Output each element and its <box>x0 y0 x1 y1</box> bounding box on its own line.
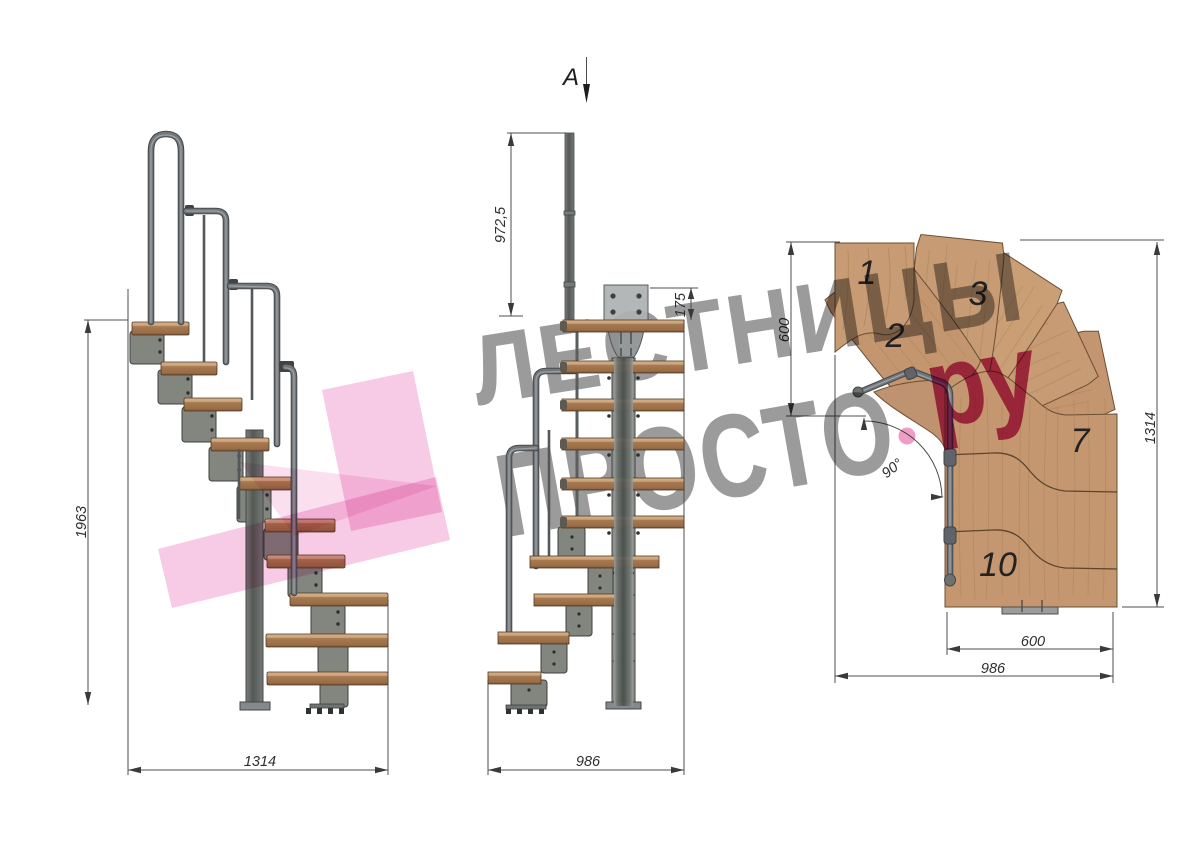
svg-text:1963: 1963 <box>74 506 90 538</box>
svg-text:600: 600 <box>1021 634 1045 650</box>
svg-text:986: 986 <box>981 661 1006 677</box>
svg-text:ру: ру <box>917 310 1047 452</box>
svg-text:1314: 1314 <box>244 754 276 770</box>
svg-text:972,5: 972,5 <box>493 206 509 243</box>
svg-text:175: 175 <box>673 292 689 317</box>
svg-text:10: 10 <box>979 546 1017 584</box>
svg-text:1314: 1314 <box>1143 412 1159 444</box>
svg-text:7: 7 <box>1071 422 1091 460</box>
svg-text:A: A <box>561 64 579 91</box>
svg-text:986: 986 <box>576 754 601 770</box>
